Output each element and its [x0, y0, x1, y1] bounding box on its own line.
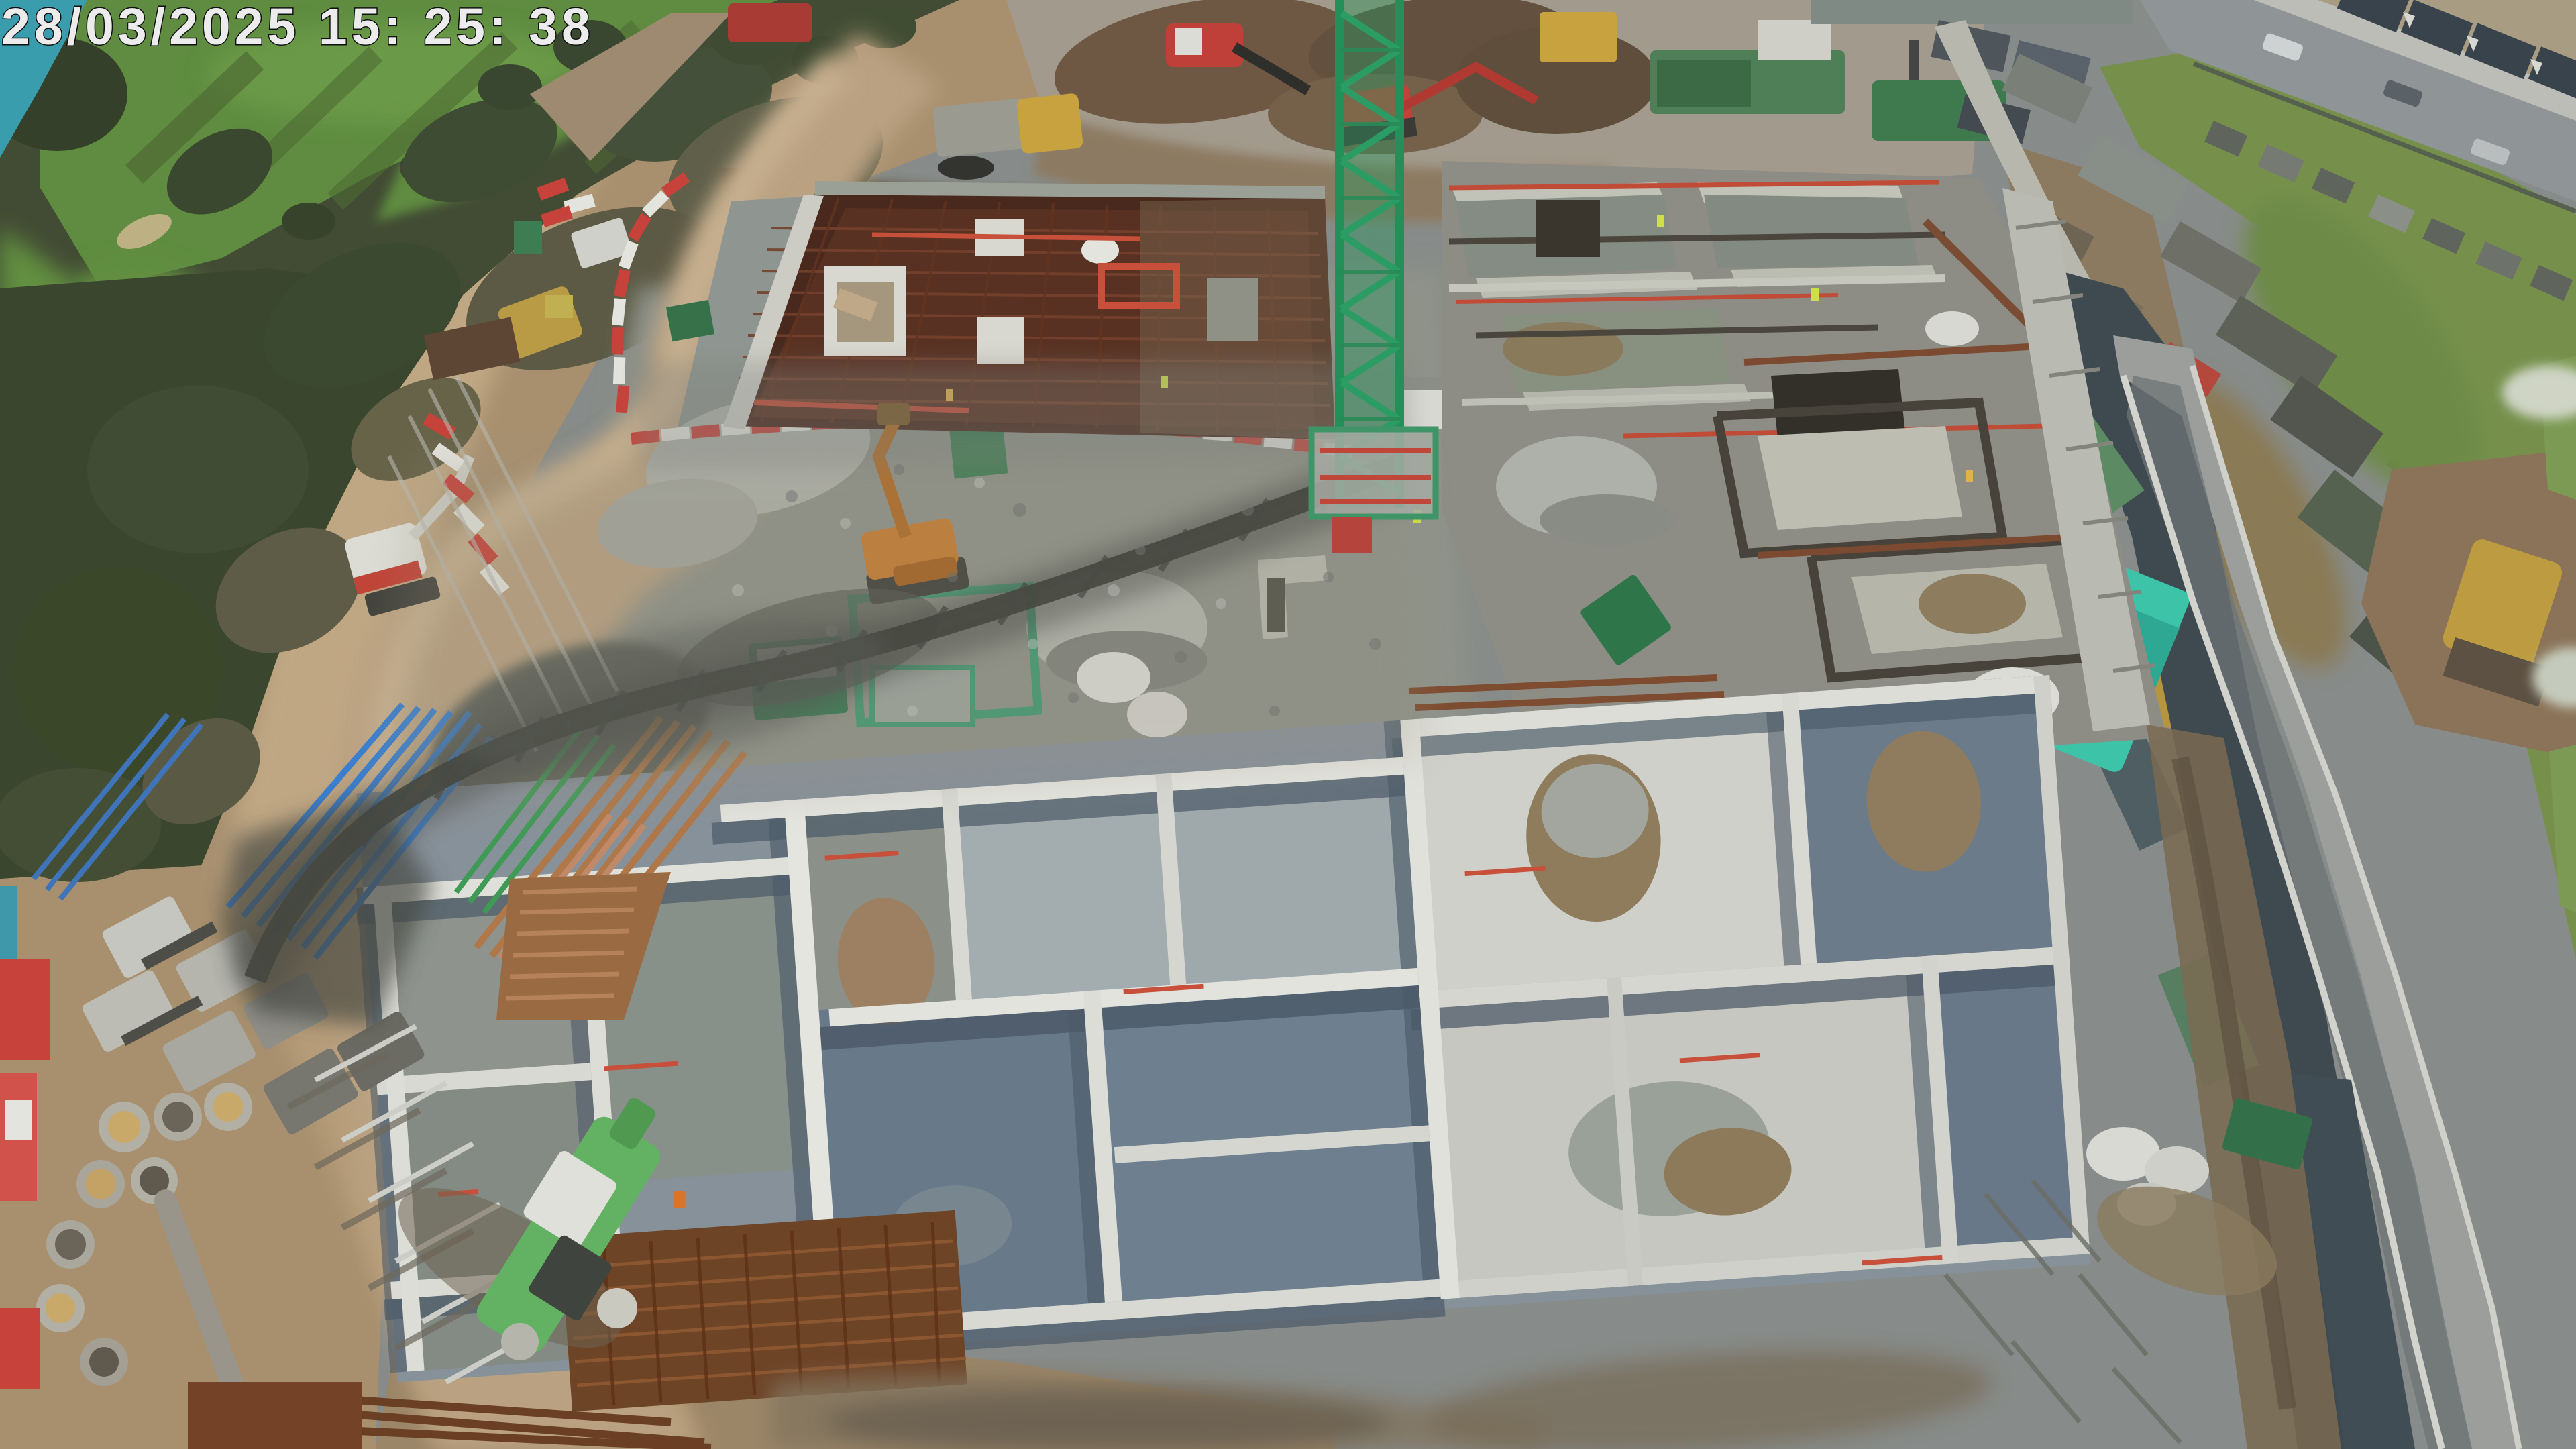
svg-text:28/03/2025 15: 25: 38: 28/03/2025 15: 25: 38 — [1, 0, 594, 56]
